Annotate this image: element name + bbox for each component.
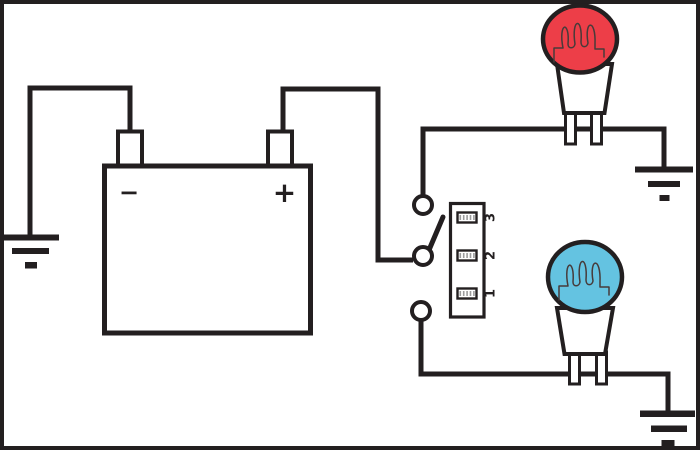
bulb-prong-left — [570, 352, 580, 384]
selector-switch: 3 2 1 — [412, 196, 499, 320]
selector-position-label-1: 1 — [484, 289, 499, 298]
circuit-diagram: − + 3 2 1 — [0, 0, 700, 450]
battery-negative-label: − — [119, 179, 139, 207]
switch-contact-bottom — [412, 302, 430, 320]
bulb-prong-left — [566, 111, 576, 144]
battery-positive-label: + — [273, 176, 296, 209]
battery-negative-terminal — [118, 132, 142, 168]
switch-contact-top — [414, 196, 432, 214]
switch-contact-common — [414, 247, 432, 265]
bulb-prong-right — [592, 111, 602, 144]
bulb-socket — [557, 308, 613, 354]
selector-position-label-2: 2 — [484, 251, 499, 260]
ground-bar-small — [662, 440, 675, 447]
bulb-prong-right — [597, 352, 607, 384]
battery-positive-terminal — [268, 132, 292, 168]
ground-bar-medium — [12, 248, 49, 254]
selector-position-label-3: 3 — [484, 213, 499, 222]
ground-bar-large — [2, 235, 59, 241]
circuit-diagram-canvas: − + 3 2 1 — [0, 0, 700, 450]
ground-bar-medium — [648, 181, 680, 187]
bulb-globe-blue — [548, 242, 622, 312]
ground-bar-small — [25, 262, 37, 269]
ground-bar-small — [660, 195, 670, 201]
ground-bar-large — [635, 167, 693, 173]
ground-bar-large — [640, 411, 695, 418]
ground-bar-medium — [651, 426, 687, 433]
